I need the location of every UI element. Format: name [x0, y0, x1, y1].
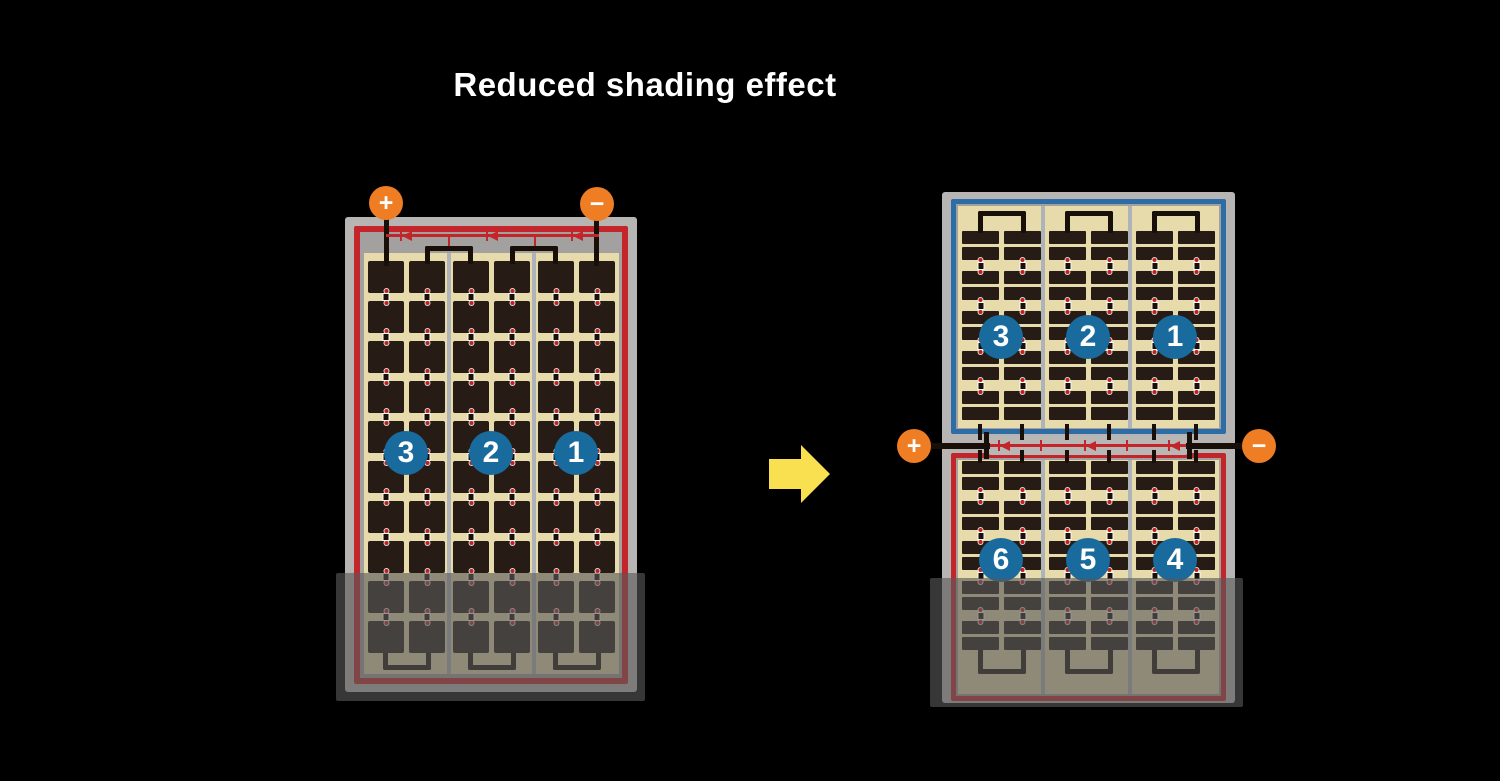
plus-lead-wire [384, 218, 389, 266]
cell-junction [1107, 258, 1112, 274]
cell-junction [978, 488, 983, 504]
cell-junction [595, 369, 600, 385]
string-badge: 1 [1153, 315, 1197, 359]
string-badge: 3 [384, 431, 428, 475]
solar-cell [538, 501, 574, 541]
diagram-canvas: Reduced shading effect + − 3 2 1 [0, 0, 1500, 781]
solar-cell [579, 501, 615, 541]
diagram-title: Reduced shading effect [345, 66, 945, 104]
cell-junction [469, 409, 474, 425]
cell-junction [510, 329, 515, 345]
cell-junction [978, 258, 983, 274]
half-cut-cell [1049, 271, 1086, 311]
cell-junction [1194, 528, 1199, 544]
cell-junction [1020, 488, 1025, 504]
minus-label: − [590, 192, 605, 217]
string-number: 2 [483, 436, 500, 470]
bus-end-bar [1187, 432, 1192, 459]
string-divider [1128, 206, 1132, 428]
cell-junction [469, 489, 474, 505]
right-arrow-icon [801, 445, 830, 503]
cell-junction [1065, 258, 1070, 274]
half-cut-cell [1136, 501, 1173, 541]
half-cut-cell [1049, 501, 1086, 541]
string-bridge-connector [1152, 211, 1200, 233]
solar-cell [409, 301, 445, 341]
half-link-stub [1065, 450, 1069, 463]
half-link-stub [1152, 450, 1156, 463]
string-badge: 5 [1066, 538, 1110, 582]
cell-junction [1020, 298, 1025, 314]
solar-cell [453, 381, 489, 421]
cell-junction [554, 409, 559, 425]
cell-junction [384, 369, 389, 385]
plus-label: + [907, 434, 922, 459]
string-badge: 6 [979, 538, 1023, 582]
cell-junction [384, 289, 389, 305]
minus-lead-wire [1186, 443, 1246, 449]
cell-junction [1152, 528, 1157, 544]
minus-terminal: − [580, 187, 614, 221]
cell-junction [1107, 528, 1112, 544]
string-badge: 2 [469, 431, 513, 475]
string-bridge-connector [425, 246, 473, 264]
cell-junction [425, 289, 430, 305]
cell-junction [1107, 298, 1112, 314]
half-link-stub [1020, 424, 1024, 440]
cell-junction [595, 489, 600, 505]
cell-junction [510, 489, 515, 505]
half-cut-cell [1091, 461, 1128, 501]
cell-junction [1194, 488, 1199, 504]
cell-junction [554, 369, 559, 385]
string-badge: 2 [1066, 315, 1110, 359]
half-cut-cell [1178, 461, 1215, 501]
cell-junction [469, 329, 474, 345]
solar-cell [368, 381, 404, 421]
solar-cell [453, 261, 489, 301]
cell-junction [425, 409, 430, 425]
solar-cell [409, 501, 445, 541]
string-bridge-connector [1065, 211, 1113, 233]
cell-junction [595, 289, 600, 305]
half-cut-cell [1091, 271, 1128, 311]
cell-junction [595, 409, 600, 425]
solar-cell [579, 381, 615, 421]
solar-cell [453, 301, 489, 341]
bus-end-bar [984, 432, 989, 459]
plus-lead-wire [928, 443, 990, 449]
half-link-stub [978, 424, 982, 440]
cell-junction [425, 529, 430, 545]
half-cut-cell [962, 461, 999, 501]
half-cut-cell [1091, 231, 1128, 271]
string-divider [1041, 206, 1045, 428]
bypass-diode-icon [400, 230, 412, 241]
half-cut-cell [1136, 461, 1173, 501]
shading-overlay [336, 573, 645, 701]
cell-junction [554, 289, 559, 305]
half-cut-cell [1049, 461, 1086, 501]
solar-cell [538, 261, 574, 301]
cell-junction [1107, 488, 1112, 504]
half-link-stub [1065, 424, 1069, 440]
half-link-stub [1152, 424, 1156, 440]
string-number: 1 [1167, 320, 1184, 354]
cell-junction [510, 409, 515, 425]
half-cut-cell [962, 231, 999, 271]
plus-label: + [379, 191, 394, 216]
half-cut-cell [1178, 271, 1215, 311]
half-cut-cell [1136, 271, 1173, 311]
solar-cell [494, 261, 530, 301]
cell-junction [1194, 258, 1199, 274]
cell-junction [384, 409, 389, 425]
cell-junction [1107, 378, 1112, 394]
half-cut-cell [1049, 231, 1086, 271]
half-cut-cell [1004, 501, 1041, 541]
solar-cell [453, 501, 489, 541]
cell-junction [978, 378, 983, 394]
cell-junction [1020, 378, 1025, 394]
cell-junction [1194, 298, 1199, 314]
solar-cell [409, 381, 445, 421]
solar-cell [368, 261, 404, 301]
solar-cell [538, 341, 574, 381]
solar-cell [409, 261, 445, 301]
minus-label: − [1252, 434, 1267, 459]
cell-junction [554, 489, 559, 505]
solar-cell [494, 381, 530, 421]
bypass-tap-wire [1040, 440, 1042, 451]
plus-terminal: + [369, 186, 403, 220]
cell-junction [1194, 378, 1199, 394]
cell-junction [554, 529, 559, 545]
solar-cell [579, 261, 615, 301]
half-cut-cell [1136, 231, 1173, 271]
string-number: 6 [993, 543, 1010, 577]
half-link-stub [1194, 424, 1198, 440]
cell-junction [554, 329, 559, 345]
bypass-tap-wire [1126, 440, 1128, 451]
string-bridge-connector [510, 246, 558, 264]
solar-cell [538, 381, 574, 421]
bypass-diode-icon [571, 230, 583, 241]
string-number: 5 [1080, 543, 1097, 577]
cell-junction [1152, 488, 1157, 504]
solar-cell [453, 341, 489, 381]
cell-junction [1065, 378, 1070, 394]
solar-cell [409, 341, 445, 381]
half-link-stub [1020, 450, 1024, 463]
cell-junction [384, 489, 389, 505]
half-cut-cell [962, 501, 999, 541]
solar-cell [494, 341, 530, 381]
solar-cell [494, 301, 530, 341]
cell-junction [1020, 258, 1025, 274]
half-cut-cell [1178, 231, 1215, 271]
bypass-diode-icon [998, 440, 1010, 451]
cell-junction [1152, 298, 1157, 314]
string-bridge-connector [978, 211, 1026, 233]
solar-cell [579, 301, 615, 341]
cell-junction [1152, 378, 1157, 394]
bypass-diode-icon [1084, 440, 1096, 451]
cell-junction [1020, 528, 1025, 544]
cell-junction [1152, 258, 1157, 274]
cell-junction [510, 289, 515, 305]
cell-junction [1065, 298, 1070, 314]
cell-junction [469, 529, 474, 545]
solar-cell [538, 301, 574, 341]
string-number: 4 [1167, 543, 1184, 577]
half-link-stub [1107, 424, 1111, 440]
minus-terminal: − [1242, 429, 1276, 463]
cell-junction [1065, 528, 1070, 544]
solar-cell [494, 501, 530, 541]
minus-lead-wire [594, 219, 599, 266]
solar-cell [579, 341, 615, 381]
half-cut-cell [1004, 231, 1041, 271]
bypass-diode-icon [1168, 440, 1180, 451]
cell-junction [384, 529, 389, 545]
string-number: 3 [993, 320, 1010, 354]
half-cut-cell [962, 271, 999, 311]
cell-junction [978, 298, 983, 314]
string-number: 2 [1080, 320, 1097, 354]
cell-junction [978, 528, 983, 544]
cell-junction [469, 289, 474, 305]
half-cut-cell [1004, 271, 1041, 311]
cell-junction [595, 329, 600, 345]
arrow-tail [769, 459, 802, 489]
solar-cell [368, 301, 404, 341]
plus-terminal: + [897, 429, 931, 463]
cell-junction [425, 369, 430, 385]
half-link-stub [978, 450, 982, 463]
bypass-diode-icon [486, 230, 498, 241]
cell-junction [595, 529, 600, 545]
half-cut-cell [1178, 501, 1215, 541]
solar-cell [368, 501, 404, 541]
cell-junction [425, 489, 430, 505]
cell-junction [425, 329, 430, 345]
half-link-stub [1194, 450, 1198, 463]
half-link-stub [1107, 450, 1111, 463]
cell-junction [469, 369, 474, 385]
half-cut-cell [1091, 501, 1128, 541]
shading-overlay [930, 578, 1243, 707]
string-number: 3 [398, 436, 415, 470]
half-cut-cell [1004, 461, 1041, 501]
cell-junction [384, 329, 389, 345]
string-badge: 3 [979, 315, 1023, 359]
string-badge: 1 [554, 431, 598, 475]
cell-junction [510, 529, 515, 545]
cell-junction [510, 369, 515, 385]
solar-cell [368, 341, 404, 381]
string-number: 1 [568, 436, 585, 470]
cell-junction [1065, 488, 1070, 504]
string-badge: 4 [1153, 538, 1197, 582]
